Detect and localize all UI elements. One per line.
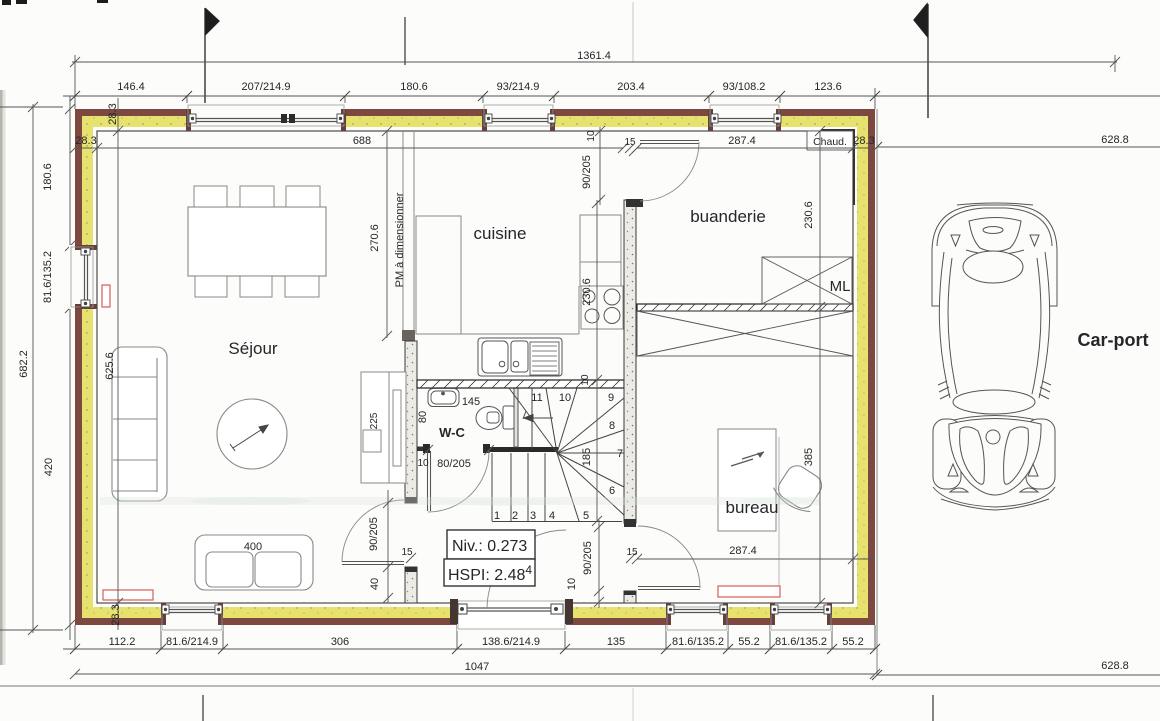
svg-text:145: 145 bbox=[462, 396, 480, 408]
svg-text:55.2: 55.2 bbox=[738, 636, 759, 648]
svg-text:385: 385 bbox=[803, 448, 815, 466]
svg-text:90/205: 90/205 bbox=[581, 155, 593, 189]
svg-text:420: 420 bbox=[43, 458, 55, 476]
svg-text:270.6: 270.6 bbox=[369, 224, 381, 252]
svg-text:10: 10 bbox=[417, 458, 429, 469]
svg-text:287.4: 287.4 bbox=[729, 545, 757, 557]
svg-text:203.4: 203.4 bbox=[617, 81, 645, 93]
svg-text:15: 15 bbox=[626, 547, 638, 558]
svg-text:185: 185 bbox=[581, 448, 593, 466]
svg-text:682.2: 682.2 bbox=[18, 350, 30, 378]
svg-text:11: 11 bbox=[531, 392, 542, 404]
svg-text:2: 2 bbox=[512, 510, 518, 522]
svg-text:55.2: 55.2 bbox=[842, 636, 863, 648]
svg-text:9: 9 bbox=[608, 392, 614, 404]
svg-text:bureau: bureau bbox=[726, 498, 779, 517]
svg-text:10: 10 bbox=[559, 392, 571, 404]
svg-text:180.6: 180.6 bbox=[42, 163, 54, 191]
svg-text:28.3: 28.3 bbox=[853, 135, 874, 147]
svg-text:123.6: 123.6 bbox=[814, 81, 842, 93]
svg-text:5: 5 bbox=[583, 510, 589, 522]
svg-text:40: 40 bbox=[369, 578, 381, 590]
svg-text:90/205: 90/205 bbox=[368, 517, 380, 551]
svg-text:ML: ML bbox=[830, 278, 851, 295]
svg-text:10: 10 bbox=[586, 130, 597, 142]
svg-text:306: 306 bbox=[331, 636, 349, 648]
svg-text:6: 6 bbox=[609, 485, 615, 497]
svg-text:81.6/135.2: 81.6/135.2 bbox=[42, 251, 54, 303]
svg-text:15: 15 bbox=[401, 547, 413, 558]
svg-text:28.3: 28.3 bbox=[110, 604, 122, 625]
svg-text:W-C: W-C bbox=[439, 425, 465, 440]
svg-text:Car-port: Car-port bbox=[1078, 330, 1149, 350]
svg-text:4: 4 bbox=[549, 510, 555, 522]
svg-text:628.8: 628.8 bbox=[1101, 660, 1129, 672]
svg-text:28.3: 28.3 bbox=[107, 103, 119, 124]
svg-text:90/205: 90/205 bbox=[582, 541, 594, 575]
svg-text:225: 225 bbox=[369, 412, 380, 429]
svg-text:PM à dimensionner: PM à dimensionner bbox=[394, 192, 406, 287]
svg-text:81.6/135.2: 81.6/135.2 bbox=[672, 636, 724, 648]
svg-text:81.6/214.9: 81.6/214.9 bbox=[166, 636, 218, 648]
svg-text:625.6: 625.6 bbox=[104, 352, 116, 380]
svg-text:80/205: 80/205 bbox=[437, 458, 471, 470]
svg-text:10: 10 bbox=[566, 578, 578, 590]
svg-text:230.6: 230.6 bbox=[581, 278, 593, 306]
svg-text:112.2: 112.2 bbox=[109, 636, 136, 648]
svg-text:28.3: 28.3 bbox=[75, 135, 96, 147]
svg-text:230.6: 230.6 bbox=[803, 201, 815, 229]
svg-text:HSPI: 2.484: HSPI: 2.484 bbox=[448, 563, 532, 584]
svg-text:1047: 1047 bbox=[465, 661, 489, 673]
svg-text:15: 15 bbox=[624, 137, 636, 148]
svg-text:8: 8 bbox=[609, 420, 615, 432]
svg-text:Chaud.: Chaud. bbox=[813, 136, 847, 148]
svg-text:180.6: 180.6 bbox=[400, 81, 428, 93]
svg-text:80: 80 bbox=[417, 411, 429, 423]
svg-text:400: 400 bbox=[244, 541, 262, 553]
svg-text:688: 688 bbox=[353, 135, 371, 147]
svg-text:93/108.2: 93/108.2 bbox=[723, 81, 766, 93]
svg-text:138.6/214.9: 138.6/214.9 bbox=[482, 636, 540, 648]
svg-text:135: 135 bbox=[607, 636, 625, 648]
svg-text:1361.4: 1361.4 bbox=[577, 50, 611, 62]
svg-text:93/214.9: 93/214.9 bbox=[497, 81, 540, 93]
svg-text:buanderie: buanderie bbox=[690, 207, 766, 226]
svg-text:7: 7 bbox=[617, 448, 623, 460]
svg-text:cuisine: cuisine bbox=[474, 224, 527, 243]
svg-text:207/214.9: 207/214.9 bbox=[242, 81, 291, 93]
svg-text:146.4: 146.4 bbox=[117, 81, 145, 93]
svg-text:Séjour: Séjour bbox=[228, 339, 277, 358]
svg-text:1: 1 bbox=[494, 510, 500, 522]
svg-text:10: 10 bbox=[580, 374, 591, 386]
svg-text:3: 3 bbox=[530, 510, 536, 522]
svg-text:Niv.: 0.273: Niv.: 0.273 bbox=[452, 538, 527, 555]
svg-text:287.4: 287.4 bbox=[728, 135, 756, 147]
svg-text:628.8: 628.8 bbox=[1101, 134, 1129, 146]
svg-text:81.6/135.2: 81.6/135.2 bbox=[775, 636, 827, 648]
